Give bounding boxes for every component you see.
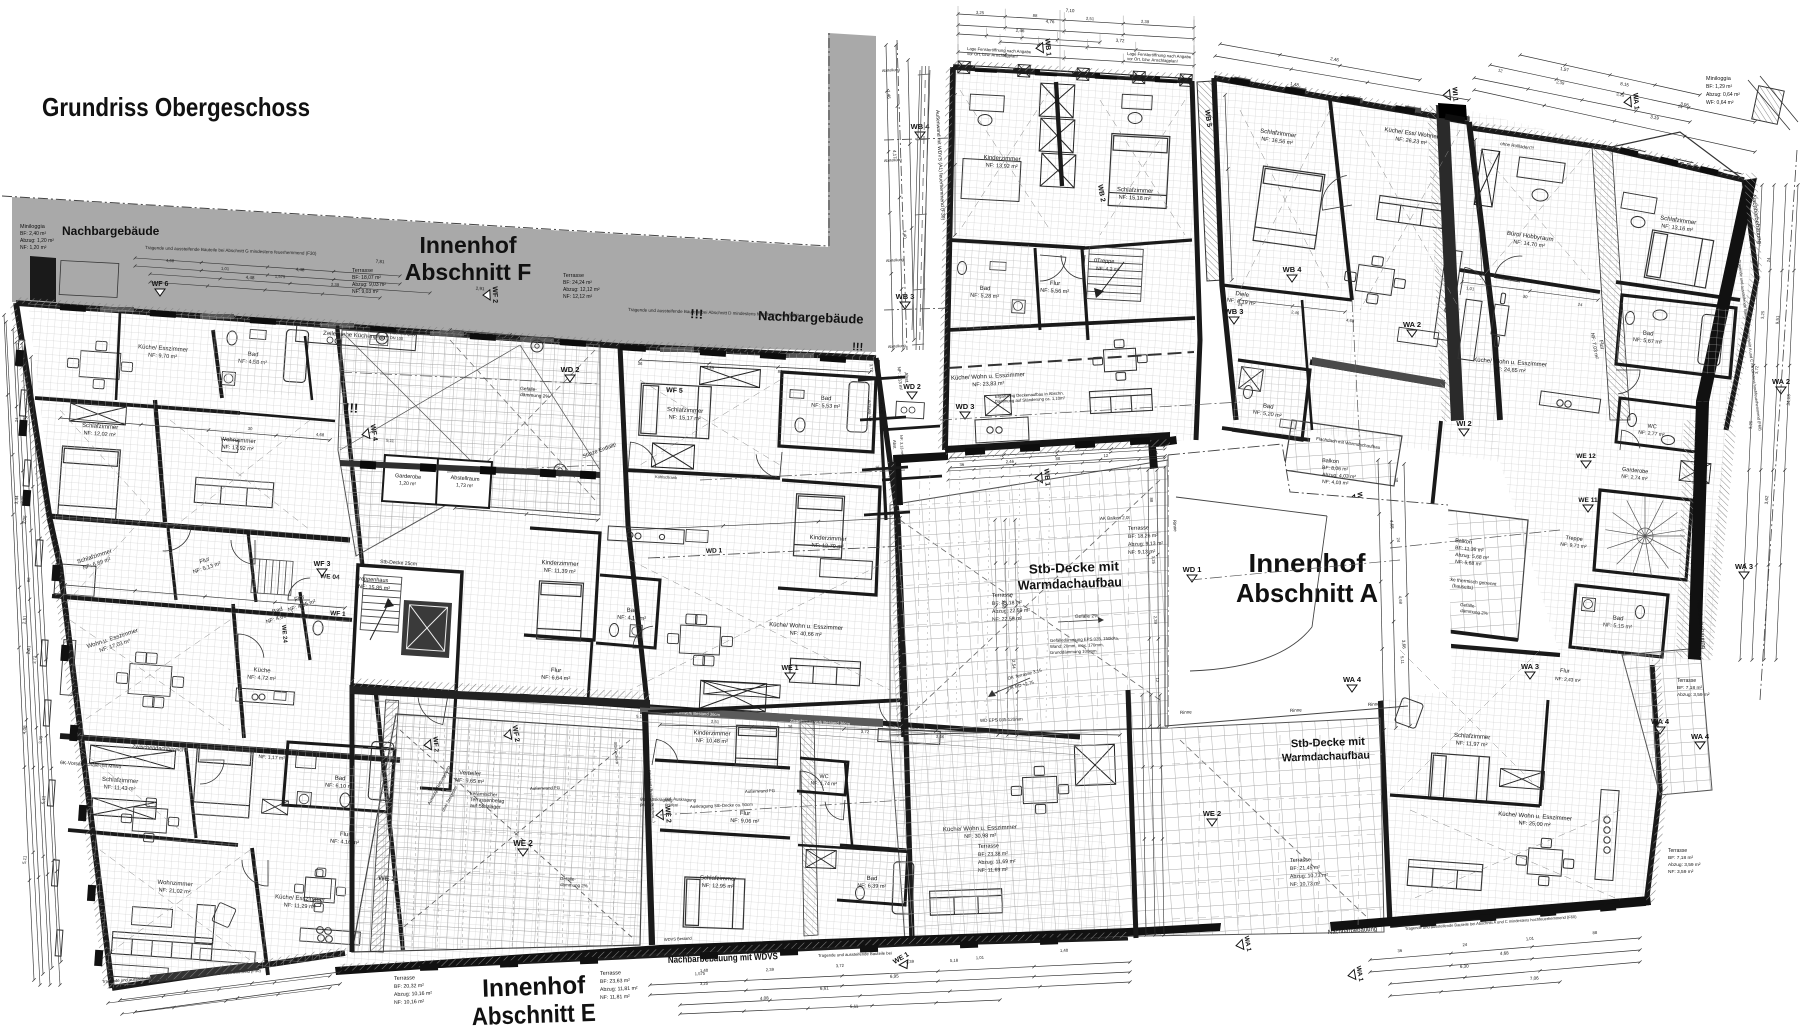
svg-text:9,51: 9,51 bbox=[1775, 315, 1780, 325]
svg-text:Flur: Flur bbox=[1050, 281, 1061, 288]
svg-text:3,25: 3,25 bbox=[700, 981, 709, 986]
svg-text:4,68: 4,68 bbox=[1500, 950, 1510, 956]
svg-text:NF: 1,74 m²: NF: 1,74 m² bbox=[810, 781, 837, 788]
svg-text:1,20 m²: 1,20 m² bbox=[399, 480, 417, 487]
svg-text:4,48: 4,48 bbox=[246, 275, 256, 280]
svg-text:3,25: 3,25 bbox=[706, 365, 715, 370]
svg-text:NF: 3,59 m²: NF: 3,59 m² bbox=[1668, 869, 1694, 875]
svg-text:Bad: Bad bbox=[627, 608, 638, 615]
svg-text:3,72: 3,72 bbox=[836, 963, 845, 968]
svg-text:Terrasse: Terrasse bbox=[978, 843, 999, 850]
svg-text:Abst.: Abst. bbox=[266, 748, 279, 755]
svg-text:3,62: 3,62 bbox=[1764, 495, 1769, 505]
svg-text:WA 4: WA 4 bbox=[1691, 732, 1710, 741]
svg-text:1,575: 1,575 bbox=[275, 274, 286, 280]
svg-text:NF: 12,95 m²: NF: 12,95 m² bbox=[702, 883, 734, 890]
svg-text:3,66: 3,66 bbox=[1401, 640, 1407, 650]
svg-text:Terrasse: Terrasse bbox=[563, 273, 584, 279]
svg-text:Abst.: Abst. bbox=[892, 440, 897, 450]
svg-text:Abzug: 9,13 m²: Abzug: 9,13 m² bbox=[1128, 541, 1164, 548]
svg-text:1,01: 1,01 bbox=[221, 266, 230, 271]
svg-text:34,13: 34,13 bbox=[1786, 394, 1792, 406]
svg-text:NF: 9,03 m²: NF: 9,03 m² bbox=[352, 289, 379, 295]
svg-text:!!!: !!! bbox=[345, 400, 359, 416]
svg-text:4,76: 4,76 bbox=[1046, 19, 1056, 24]
svg-text:1,40: 1,40 bbox=[1060, 948, 1069, 953]
svg-text:Innenhof: Innenhof bbox=[1249, 548, 1366, 578]
svg-text:2,51: 2,51 bbox=[1150, 450, 1159, 456]
svg-text:3,25: 3,25 bbox=[976, 10, 985, 15]
svg-text:2,39: 2,39 bbox=[331, 282, 340, 287]
svg-text:2,91: 2,91 bbox=[476, 286, 486, 291]
svg-text:!!!: !!! bbox=[690, 306, 704, 322]
svg-text:6,30: 6,30 bbox=[1460, 963, 1470, 969]
svg-text:Terrasse: Terrasse bbox=[1290, 857, 1311, 864]
svg-text:NF: 10,73 m²: NF: 10,73 m² bbox=[1290, 881, 1321, 888]
svg-text:BF: 7,18 m²: BF: 7,18 m² bbox=[1668, 855, 1693, 861]
svg-text:WF: 0,64 m²: WF: 0,64 m² bbox=[1706, 100, 1734, 106]
svg-text:2,54: 2,54 bbox=[1011, 660, 1016, 670]
svg-text:3,72: 3,72 bbox=[1754, 365, 1760, 374]
svg-text:NF: 10,16 m²: NF: 10,16 m² bbox=[394, 999, 425, 1006]
svg-text:WA 3: WA 3 bbox=[1521, 662, 1539, 671]
svg-text:BF: 1,29 m²: BF: 1,29 m² bbox=[1706, 84, 1732, 90]
svg-text:OH 1,42: OH 1,42 bbox=[879, 400, 884, 414]
svg-text:3,25: 3,25 bbox=[1151, 556, 1157, 565]
svg-text:Innenhof: Innenhof bbox=[419, 232, 516, 258]
svg-text:5,18: 5,18 bbox=[950, 958, 959, 963]
svg-text:Nachbargebäude: Nachbargebäude bbox=[62, 224, 160, 238]
svg-text:3,25: 3,25 bbox=[1748, 420, 1754, 429]
svg-text:Rinne: Rinne bbox=[1368, 701, 1380, 707]
svg-text:WA 3: WA 3 bbox=[1735, 562, 1753, 571]
svg-text:Miniloggia: Miniloggia bbox=[20, 224, 46, 230]
svg-text:Terrasse: Terrasse bbox=[600, 970, 621, 977]
svg-text:NF: 12,12 m²: NF: 12,12 m² bbox=[563, 294, 593, 300]
svg-text:Gefälle-: Gefälle- bbox=[560, 876, 576, 882]
svg-text:Balkon: Balkon bbox=[1322, 458, 1339, 465]
svg-text:7,06: 7,06 bbox=[1530, 975, 1540, 981]
svg-text:WF 2: WF 2 bbox=[491, 286, 499, 303]
svg-text:WF 3: WF 3 bbox=[314, 561, 331, 568]
svg-text:Terrasse: Terrasse bbox=[992, 592, 1013, 599]
svg-text:Flur: Flur bbox=[1560, 668, 1570, 675]
svg-text:WE 11: WE 11 bbox=[1578, 497, 1598, 504]
svg-text:WD 1: WD 1 bbox=[1183, 565, 1202, 574]
svg-text:WD 1: WD 1 bbox=[706, 547, 723, 555]
svg-text:NF: 1,20 m²: NF: 1,20 m² bbox=[20, 245, 47, 251]
svg-text:WD 3: WD 3 bbox=[956, 402, 975, 411]
svg-text:3,25: 3,25 bbox=[872, 414, 878, 423]
svg-text:BF: 23,63 m²: BF: 23,63 m² bbox=[600, 978, 630, 985]
svg-text:WA 4: WA 4 bbox=[1343, 675, 1362, 684]
svg-text:1,01: 1,01 bbox=[1526, 936, 1535, 942]
svg-text:3,40: 3,40 bbox=[902, 230, 907, 240]
svg-text:Abzug: 0,64 m²: Abzug: 0,64 m² bbox=[1706, 92, 1740, 98]
svg-text:2,51: 2,51 bbox=[711, 719, 720, 724]
svg-text:5,11: 5,11 bbox=[386, 438, 395, 444]
svg-text:Abzug: 1,20 m²: Abzug: 1,20 m² bbox=[20, 238, 54, 244]
svg-text:2,46: 2,46 bbox=[1006, 459, 1015, 465]
svg-text:WF 5: WF 5 bbox=[666, 387, 683, 395]
svg-text:6,61: 6,61 bbox=[820, 986, 830, 991]
svg-text:WF 1: WF 1 bbox=[330, 610, 346, 618]
svg-text:2,39: 2,39 bbox=[906, 959, 915, 964]
svg-text:4,68: 4,68 bbox=[1389, 520, 1395, 530]
svg-text:5,11: 5,11 bbox=[1400, 656, 1406, 665]
svg-text:Abzug: 3,59 m²: Abzug: 3,59 m² bbox=[1668, 862, 1701, 868]
svg-text:7,81: 7,81 bbox=[376, 259, 386, 264]
svg-text:BF: 24,24 m²: BF: 24,24 m² bbox=[563, 280, 592, 286]
svg-text:Abschnitt A: Abschnitt A bbox=[1236, 578, 1378, 608]
svg-text:WI 1: WI 1 bbox=[1450, 87, 1458, 102]
svg-text:WA 2: WA 2 bbox=[1403, 320, 1421, 329]
svg-text:Rinne: Rinne bbox=[1290, 707, 1302, 713]
svg-text:Terrasse: Terrasse bbox=[1128, 525, 1149, 532]
svg-text:2,46: 2,46 bbox=[1016, 28, 1026, 33]
svg-text:3,72: 3,72 bbox=[1116, 38, 1126, 43]
svg-text:WE 2: WE 2 bbox=[1203, 809, 1221, 818]
svg-text:3,72: 3,72 bbox=[861, 729, 870, 734]
svg-text:WI 2: WI 2 bbox=[1456, 419, 1471, 428]
svg-text:2,39: 2,39 bbox=[38, 735, 44, 744]
svg-text:3,72: 3,72 bbox=[869, 364, 875, 373]
svg-text:BF: 20,32 m²: BF: 20,32 m² bbox=[394, 983, 424, 990]
svg-text:Abschnitt E: Abschnitt E bbox=[471, 999, 596, 1029]
svg-text:2,39: 2,39 bbox=[766, 967, 775, 972]
svg-text:Abzug: 12,12 m²: Abzug: 12,12 m² bbox=[563, 287, 600, 293]
svg-text:5,11: 5,11 bbox=[636, 714, 645, 719]
svg-text:2,39: 2,39 bbox=[1141, 19, 1150, 24]
svg-text:Grundriss Obergeschoss: Grundriss Obergeschoss bbox=[42, 92, 310, 122]
svg-text:BF: 23,38 m²: BF: 23,38 m² bbox=[978, 851, 1008, 858]
svg-text:WE 1: WE 1 bbox=[781, 665, 798, 672]
svg-text:4,68: 4,68 bbox=[166, 258, 175, 263]
svg-text:2,46: 2,46 bbox=[936, 734, 945, 739]
svg-text:BF: 7,18 m²: BF: 7,18 m² bbox=[1677, 685, 1702, 691]
svg-text:Terrasse: Terrasse bbox=[1668, 848, 1687, 854]
svg-text:2,39: 2,39 bbox=[1153, 616, 1159, 625]
svg-text:BF: 18,26 m²: BF: 18,26 m² bbox=[1128, 533, 1158, 540]
svg-text:1,73 m²: 1,73 m² bbox=[456, 482, 474, 489]
svg-text:Abschnitt F: Abschnitt F bbox=[405, 259, 532, 285]
svg-text:4,68: 4,68 bbox=[1398, 596, 1404, 605]
svg-text:0Treppe: 0Treppe bbox=[1094, 258, 1115, 265]
svg-text:4,48: 4,48 bbox=[296, 267, 306, 272]
svg-text:NF: 11,69 m²: NF: 11,69 m² bbox=[978, 867, 1008, 874]
svg-text:BF: 2,40 m²: BF: 2,40 m² bbox=[20, 231, 46, 237]
svg-text:6,95: 6,95 bbox=[890, 974, 900, 979]
svg-text:NF: 11,81 m²: NF: 11,81 m² bbox=[600, 994, 630, 1001]
svg-text:Flur: Flur bbox=[551, 668, 562, 675]
svg-text:4,68: 4,68 bbox=[316, 432, 325, 438]
svg-text:prüfen!: prüfen! bbox=[665, 802, 679, 808]
svg-text:7,10: 7,10 bbox=[1066, 8, 1076, 13]
svg-text:WD 2: WD 2 bbox=[903, 384, 921, 391]
svg-text:4,08: 4,08 bbox=[760, 996, 770, 1001]
svg-text:WB 4: WB 4 bbox=[1283, 265, 1303, 274]
svg-text:3,72: 3,72 bbox=[32, 655, 38, 664]
svg-text:WD 2: WD 2 bbox=[561, 365, 580, 374]
svg-text:2,51: 2,51 bbox=[1086, 16, 1095, 21]
svg-text:Gefälle-: Gefälle- bbox=[520, 386, 538, 393]
svg-text:Miniloggia: Miniloggia bbox=[1706, 76, 1732, 82]
svg-text:1,01: 1,01 bbox=[976, 955, 985, 960]
svg-text:2,39: 2,39 bbox=[20, 495, 26, 504]
svg-text:Innenhof: Innenhof bbox=[482, 971, 587, 1003]
svg-text:3,25: 3,25 bbox=[1760, 310, 1766, 319]
svg-text:Rinne: Rinne bbox=[1172, 520, 1178, 533]
svg-text:Rinne: Rinne bbox=[1180, 709, 1192, 715]
svg-text:NF: 9,13 m²: NF: 9,13 m² bbox=[1128, 549, 1156, 556]
svg-text:Terrasse: Terrasse bbox=[1677, 678, 1696, 684]
svg-text:WE 12: WE 12 bbox=[1576, 453, 1596, 460]
svg-text:1,46: 1,46 bbox=[886, 90, 891, 100]
svg-text:NF: 9,06 m²: NF: 9,06 m² bbox=[730, 818, 759, 825]
svg-text:WC: WC bbox=[819, 774, 828, 780]
svg-text:AK Balkon 2,0t: AK Balkon 2,0t bbox=[1100, 515, 1131, 521]
svg-text:1,575: 1,575 bbox=[695, 971, 706, 977]
svg-text:Abzug: 3,59 m²: Abzug: 3,59 m² bbox=[1677, 692, 1710, 698]
svg-text:WC: WC bbox=[1647, 424, 1657, 431]
svg-text:WE 2: WE 2 bbox=[513, 839, 533, 848]
svg-text:3,44: 3,44 bbox=[14, 495, 20, 505]
svg-text:WB 3: WB 3 bbox=[1225, 307, 1244, 316]
svg-text:WA 1: WA 1 bbox=[1631, 93, 1639, 111]
svg-text:BF: 18,07 m²: BF: 18,07 m² bbox=[352, 275, 381, 281]
svg-text:Terrasse: Terrasse bbox=[394, 975, 415, 982]
svg-text:BF: 21,45 m²: BF: 21,45 m² bbox=[1290, 865, 1320, 872]
svg-text:3,58: 3,58 bbox=[1001, 600, 1006, 610]
svg-text:Flur: Flur bbox=[740, 811, 751, 817]
svg-text:5,11: 5,11 bbox=[850, 1004, 859, 1009]
svg-text:NF: 10,48 m²: NF: 10,48 m² bbox=[696, 738, 728, 745]
